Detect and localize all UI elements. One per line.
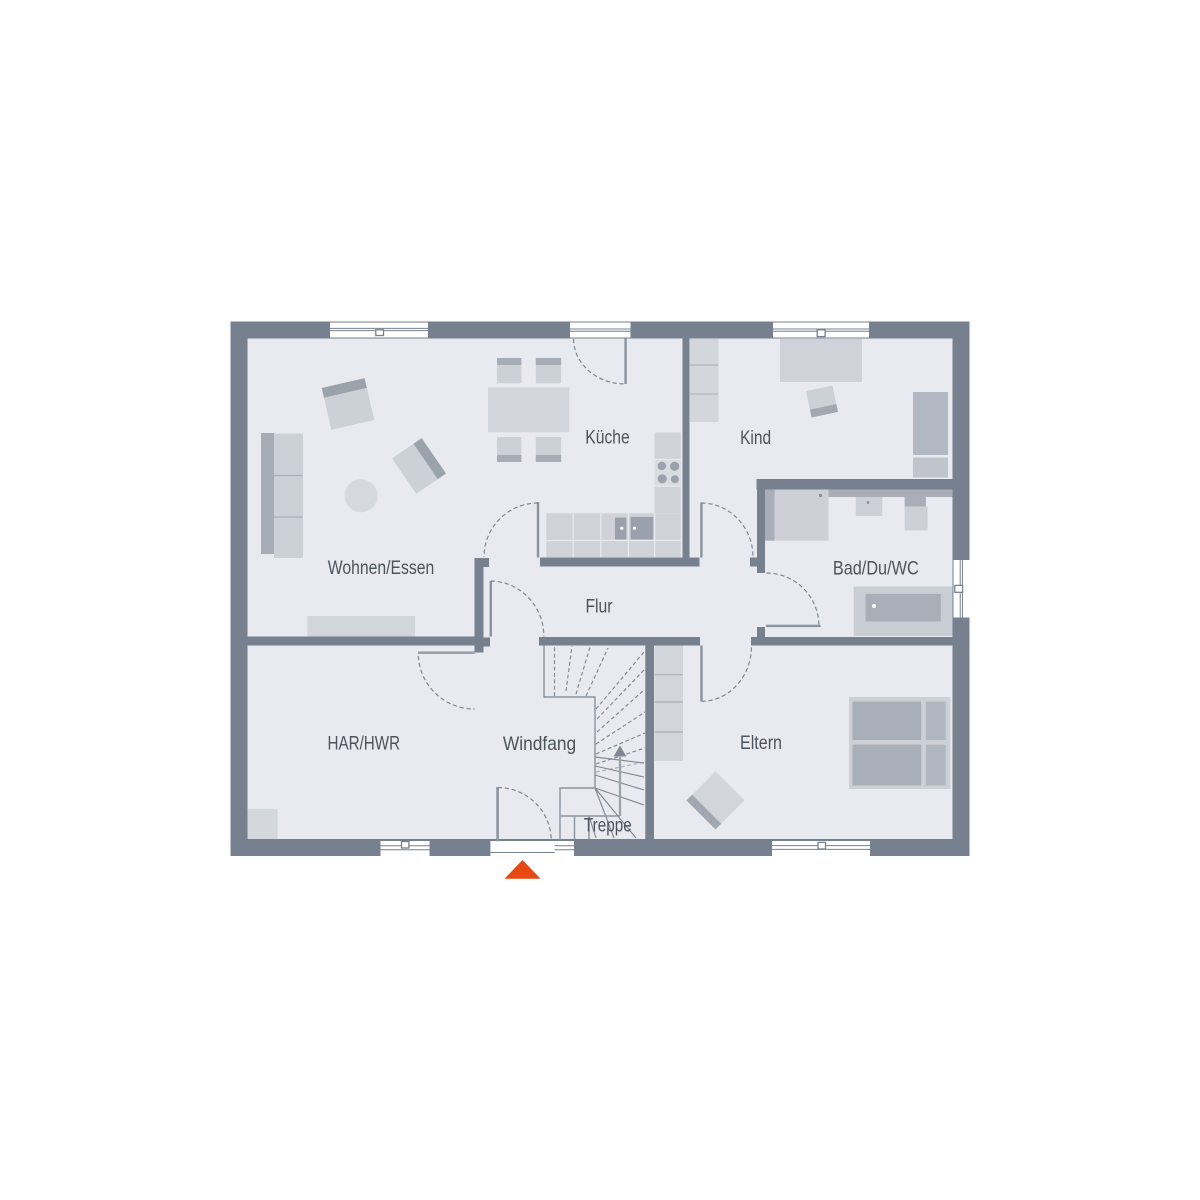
svg-text:Wohnen/Essen: Wohnen/Essen bbox=[328, 557, 435, 579]
svg-text:Küche: Küche bbox=[585, 427, 629, 449]
svg-text:Windfang: Windfang bbox=[503, 733, 576, 755]
svg-text:Bad/Du/WC: Bad/Du/WC bbox=[833, 558, 919, 580]
svg-text:Kind: Kind bbox=[740, 427, 771, 449]
svg-text:HAR/HWR: HAR/HWR bbox=[328, 733, 401, 755]
svg-text:Treppe: Treppe bbox=[584, 815, 632, 837]
svg-text:Flur: Flur bbox=[585, 596, 613, 618]
svg-text:Eltern: Eltern bbox=[740, 732, 782, 754]
